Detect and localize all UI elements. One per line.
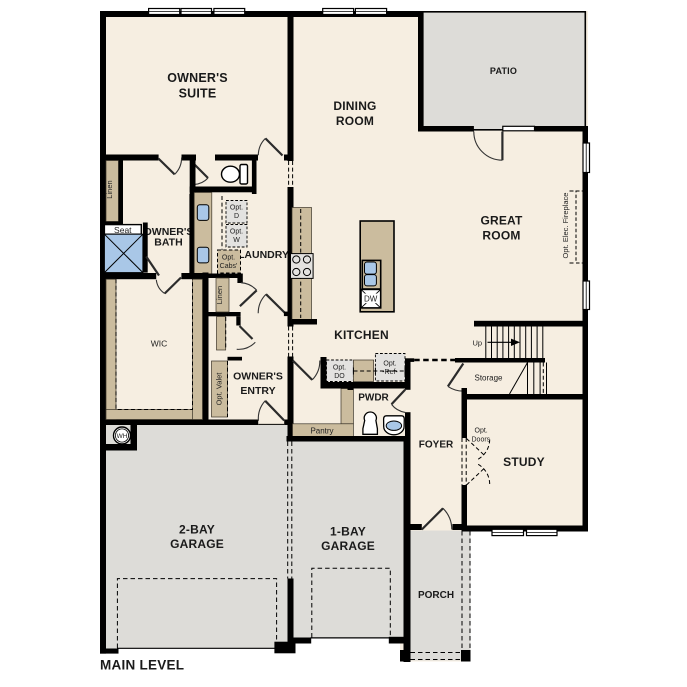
svg-text:Opt.: Opt. [222,255,235,262]
svg-text:OWNER'S: OWNER'S [233,371,283,383]
svg-text:LAUNDRY: LAUNDRY [238,249,289,261]
svg-text:OWNER'S: OWNER'S [167,71,228,85]
svg-text:WH: WH [117,433,128,440]
svg-text:KITCHEN: KITCHEN [334,328,389,342]
svg-text:Linen: Linen [105,180,114,198]
svg-text:PWDR: PWDR [358,393,389,404]
svg-text:MAIN LEVEL: MAIN LEVEL [100,658,184,673]
svg-text:DINING: DINING [333,99,376,113]
svg-text:DO: DO [334,373,345,380]
svg-text:PATIO: PATIO [490,66,517,76]
svg-text:FOYER: FOYER [419,440,454,451]
svg-text:2-BAY: 2-BAY [179,523,215,537]
svg-text:-Ref-: -Ref- [382,369,398,376]
svg-text:Seat: Seat [114,225,132,235]
svg-text:Opt. Elec. Fireplace: Opt. Elec. Fireplace [561,193,570,259]
svg-text:Opt.: Opt. [333,365,346,372]
svg-text:W: W [233,237,240,244]
svg-text:Doors: Doors [472,437,491,444]
svg-text:Storage: Storage [474,374,503,383]
svg-text:ROOM: ROOM [482,229,520,243]
svg-text:Opt.: Opt. [230,229,243,236]
svg-text:ROOM: ROOM [336,114,374,128]
svg-text:Opt. Valet: Opt. Valet [215,372,224,406]
svg-text:Pantry: Pantry [310,427,333,436]
svg-text:GARAGE: GARAGE [170,537,224,551]
svg-text:PORCH: PORCH [418,590,454,601]
svg-text:1-BAY: 1-BAY [330,525,366,539]
svg-text:Linen: Linen [215,286,224,304]
svg-text:Up: Up [473,338,483,347]
svg-text:D: D [234,213,239,220]
svg-text:Opt.: Opt. [383,361,396,368]
svg-text:WIC: WIC [151,339,168,349]
svg-text:Opt.: Opt. [475,428,488,435]
svg-text:GARAGE: GARAGE [321,539,375,553]
svg-text:ENTRY: ENTRY [240,385,275,397]
svg-text:Opt.: Opt. [230,205,243,212]
svg-text:BATH: BATH [154,237,182,249]
svg-text:Cabs': Cabs' [220,263,238,270]
svg-text:DW: DW [364,295,378,304]
svg-text:STUDY: STUDY [503,455,545,469]
svg-text:GREAT: GREAT [480,214,523,228]
svg-text:SUITE: SUITE [179,87,217,101]
